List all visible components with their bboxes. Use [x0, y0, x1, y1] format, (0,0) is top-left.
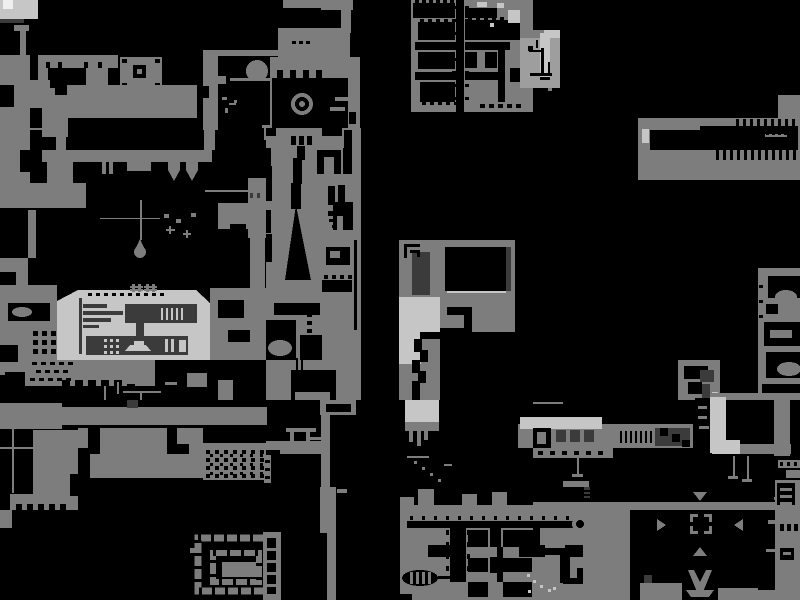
game-world-map[interactable] [0, 0, 800, 600]
map-screen [0, 0, 800, 600]
